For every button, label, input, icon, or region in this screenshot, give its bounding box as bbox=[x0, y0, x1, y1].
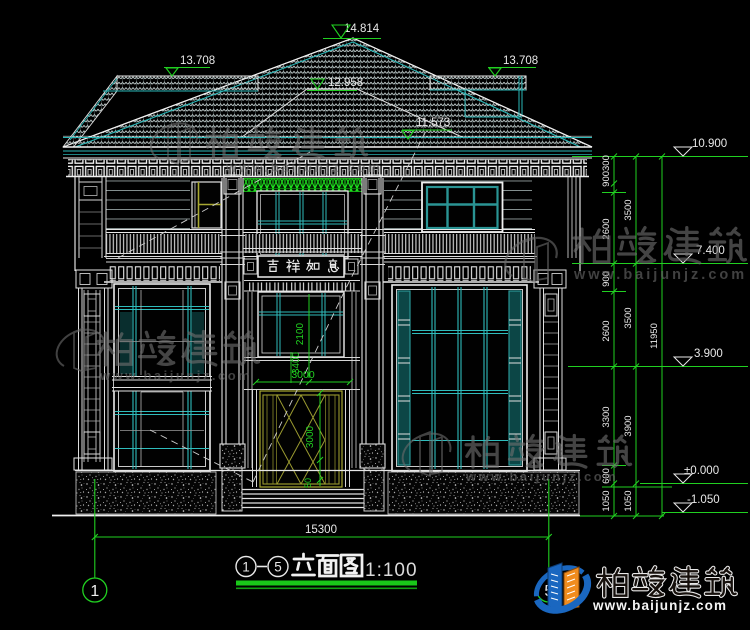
svg-text:3500: 3500 bbox=[623, 199, 634, 220]
svg-text:12.958: 12.958 bbox=[328, 77, 363, 89]
svg-text:11.573: 11.573 bbox=[416, 117, 450, 129]
svg-text:1050: 1050 bbox=[623, 490, 634, 511]
svg-text:3300: 3300 bbox=[601, 406, 612, 427]
svg-text:10.900: 10.900 bbox=[692, 138, 727, 150]
svg-text:3.900: 3.900 bbox=[694, 348, 723, 360]
svg-text:3000: 3000 bbox=[305, 425, 316, 448]
svg-text:1:100: 1:100 bbox=[365, 560, 418, 581]
svg-text:5: 5 bbox=[274, 560, 282, 575]
svg-text:3000: 3000 bbox=[291, 369, 315, 381]
svg-text:3500: 3500 bbox=[623, 307, 634, 328]
svg-text:www.baijunjz.com: www.baijunjz.com bbox=[225, 160, 383, 175]
svg-text:www.baijunjz.com: www.baijunjz.com bbox=[573, 267, 747, 283]
svg-text:900300: 900300 bbox=[601, 155, 612, 187]
svg-text:www.baijunjz.com: www.baijunjz.com bbox=[465, 469, 618, 484]
svg-text:-1.050: -1.050 bbox=[687, 494, 720, 506]
svg-text:1: 1 bbox=[90, 583, 99, 600]
svg-text:50: 50 bbox=[303, 478, 313, 488]
svg-text:15300: 15300 bbox=[305, 524, 337, 536]
svg-text:1: 1 bbox=[242, 560, 250, 575]
svg-text:13.708: 13.708 bbox=[180, 55, 215, 67]
svg-text:www.baijunjz.com: www.baijunjz.com bbox=[99, 368, 252, 383]
svg-text:3900: 3900 bbox=[623, 415, 634, 436]
svg-text:1050: 1050 bbox=[601, 490, 612, 511]
svg-text:www.baijunjz.com: www.baijunjz.com bbox=[592, 598, 727, 613]
svg-text:±0.000: ±0.000 bbox=[684, 465, 719, 477]
svg-text:13.708: 13.708 bbox=[503, 55, 538, 67]
svg-text:11950: 11950 bbox=[649, 323, 660, 349]
svg-text:2600: 2600 bbox=[601, 320, 612, 341]
svg-text:2100: 2100 bbox=[295, 322, 306, 345]
